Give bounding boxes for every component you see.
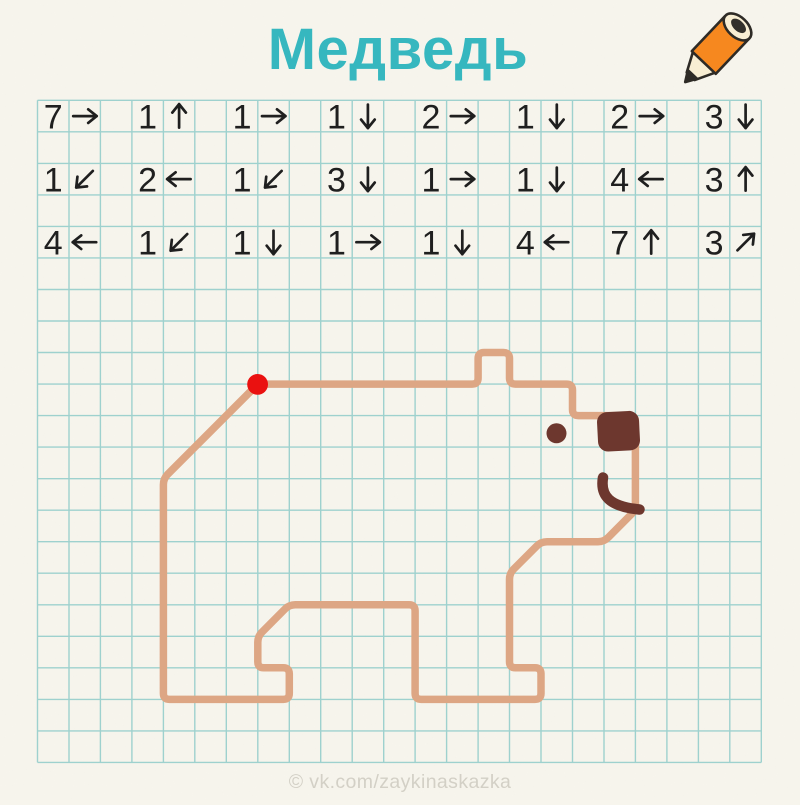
svg-text:2: 2: [138, 161, 157, 199]
svg-text:4: 4: [516, 224, 535, 262]
svg-text:3: 3: [327, 161, 346, 199]
svg-text:3: 3: [705, 224, 724, 262]
svg-text:2: 2: [421, 98, 440, 136]
svg-text:2: 2: [610, 98, 629, 136]
svg-text:1: 1: [233, 224, 252, 262]
svg-text:1: 1: [327, 98, 346, 136]
svg-text:© vk.com/zaykinaskazka: © vk.com/zaykinaskazka: [289, 771, 512, 793]
svg-text:7: 7: [610, 224, 629, 262]
svg-text:1: 1: [138, 98, 157, 136]
svg-text:3: 3: [705, 161, 724, 199]
svg-text:1: 1: [44, 161, 63, 199]
svg-text:1: 1: [327, 224, 346, 262]
svg-text:4: 4: [44, 224, 63, 262]
svg-text:1: 1: [421, 161, 440, 199]
svg-text:1: 1: [138, 224, 157, 262]
svg-text:1: 1: [516, 98, 535, 136]
svg-text:3: 3: [705, 98, 724, 136]
svg-text:1: 1: [233, 161, 252, 199]
svg-text:1: 1: [421, 224, 440, 262]
svg-text:4: 4: [610, 161, 629, 199]
svg-text:1: 1: [233, 98, 252, 136]
svg-text:1: 1: [516, 161, 535, 199]
svg-text:7: 7: [44, 98, 63, 136]
svg-text:Медведь: Медведь: [268, 17, 529, 82]
